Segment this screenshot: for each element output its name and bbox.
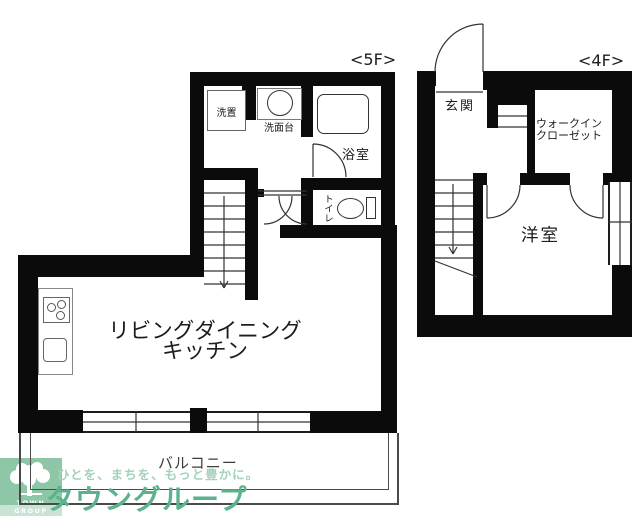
toilet-tank-icon [366, 197, 376, 219]
ldk-window-right [207, 411, 310, 433]
wall-above-notch [498, 90, 535, 105]
wall-bath-toilet [301, 178, 395, 190]
wall-vanity-bath-divider [301, 86, 313, 137]
wall-stair-top-5f [203, 168, 258, 180]
ldk-window-left [83, 411, 190, 433]
floorplan-image: TOWN GROUP [0, 0, 640, 516]
wall-5f-right-upper [381, 72, 395, 238]
wall-5f-top [190, 72, 395, 86]
room-label-western-room: 洋室 [521, 222, 560, 247]
toilet-bowl-icon [337, 198, 364, 219]
stove-burner-icon [47, 303, 56, 312]
wic-label-line1: ウォークイン [528, 118, 610, 130]
wall-toilet-left [301, 178, 313, 225]
western-room-window [608, 182, 632, 265]
room-label-washer: 洗置 [207, 104, 246, 119]
wall-ldk-bottom-left [18, 410, 83, 433]
wall-entrance-divider [487, 90, 498, 128]
wall-ldk-right [381, 238, 397, 433]
western-room-door-opening [487, 173, 520, 185]
room-label-vanity: 洗面台 [256, 119, 302, 134]
floor-tag-5f: <5F> [350, 50, 398, 69]
wall-ldk-left [18, 255, 38, 433]
room-label-bath: 浴室 [342, 144, 370, 163]
wall-stair-western-4f [473, 185, 483, 315]
stove-burner-icon [57, 300, 66, 309]
sink-icon [43, 338, 67, 362]
logo-brand: タウングループ [46, 478, 247, 516]
wall-5f-left-upper [190, 72, 204, 277]
wall-4f-bottom [417, 315, 632, 337]
wall-4f-top-right [483, 71, 630, 90]
wall-ldk-bottom-mid [190, 408, 207, 433]
doorframe-nub-left [258, 189, 264, 197]
wic-label-line2: クローゼット [528, 130, 610, 142]
wall-stair-right-5f [245, 180, 258, 300]
bathtub-icon [317, 94, 369, 134]
room-label-ldk: リビングダイニング キッチン [85, 322, 325, 362]
wall-4f-left [417, 71, 435, 337]
wic-door-opening [570, 173, 603, 185]
vanity-basin-icon [267, 90, 293, 116]
room-label-entrance: 玄関 [445, 95, 475, 114]
floor-tag-4f: <4F> [578, 51, 630, 70]
wall-toilet-bottom [280, 225, 397, 238]
wall-ldk-top [18, 255, 204, 277]
room-label-wic: ウォークイン クローゼット [528, 118, 610, 141]
ldk-label-line2: キッチン [85, 342, 325, 362]
doorframe-nub-right [307, 189, 313, 197]
room-label-toilet: トイレ [320, 194, 334, 223]
stove-burner-icon [56, 311, 65, 320]
